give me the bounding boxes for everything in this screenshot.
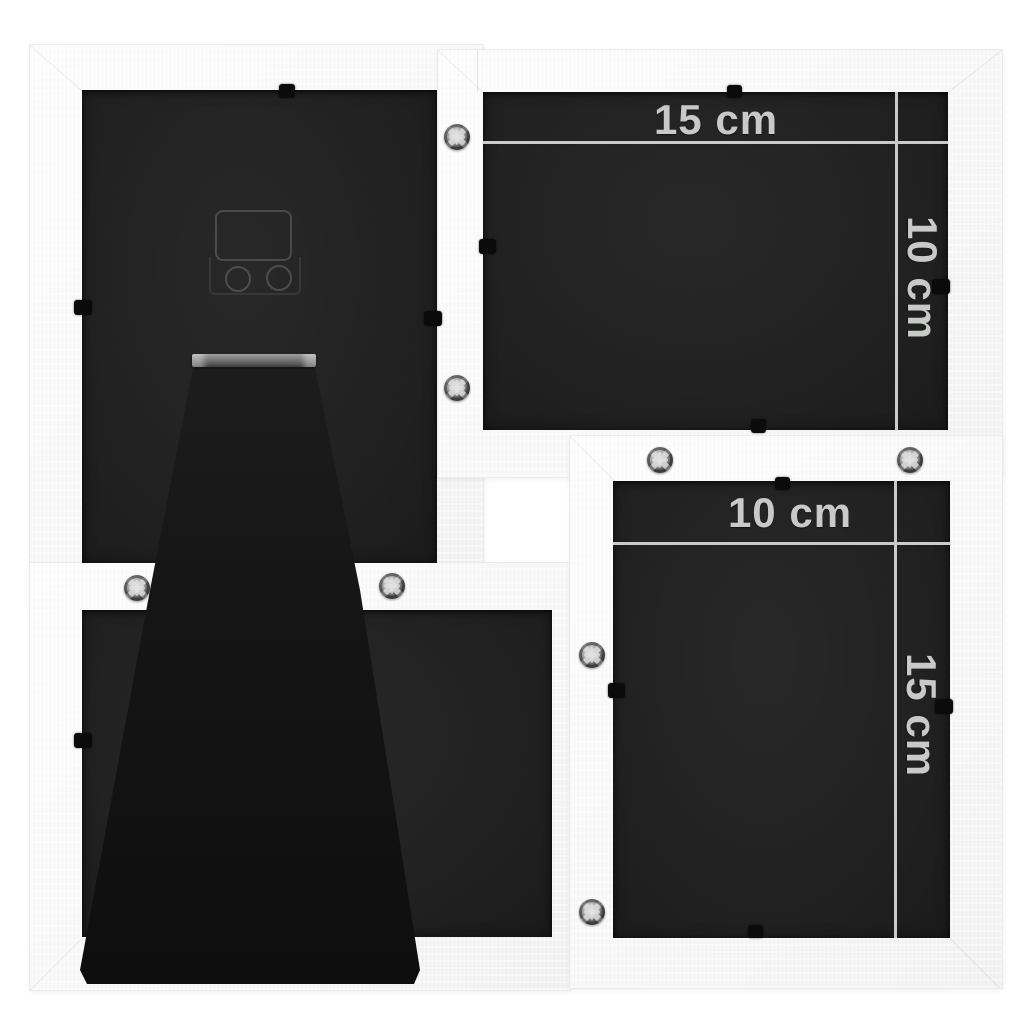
backing-clip-icon — [935, 699, 953, 714]
backing-clip-icon — [775, 477, 790, 490]
screw-icon — [897, 447, 923, 473]
backing-clip-icon — [608, 683, 625, 698]
backing-clip-icon — [748, 925, 763, 938]
backing-clip-icon — [279, 84, 295, 98]
dimension-label-bottom-right-height: 15 cm — [897, 615, 945, 815]
backing-clip-icon — [74, 300, 92, 315]
backing-clip-icon — [932, 279, 950, 294]
backing-clip-icon — [727, 85, 742, 98]
wall-hanger-icon — [215, 210, 292, 261]
screw-icon — [444, 375, 470, 401]
backing-clip-icon — [479, 239, 496, 254]
hanger-hole-icon — [225, 266, 251, 292]
screw-icon — [379, 573, 405, 599]
screw-icon — [579, 642, 605, 668]
dimension-label-bottom-right-width: 10 cm — [690, 489, 890, 537]
screw-icon — [124, 575, 150, 601]
screw-icon — [444, 124, 470, 150]
screw-icon — [647, 447, 673, 473]
backing-clip-icon — [751, 419, 766, 433]
screw-icon — [579, 899, 605, 925]
backing-clip-icon — [424, 311, 442, 326]
dimension-label-top-right-width: 15 cm — [616, 96, 816, 144]
hanger-hole-icon — [266, 265, 292, 291]
backing-clip-icon — [74, 733, 92, 748]
dimension-label-top-right-height: 10 cm — [898, 178, 946, 378]
dimension-line-width-bottom-right — [613, 542, 950, 545]
product-image: 15 cm 10 cm 10 cm 15 cm — [0, 0, 1024, 1024]
stand-hinge-icon — [192, 354, 316, 367]
